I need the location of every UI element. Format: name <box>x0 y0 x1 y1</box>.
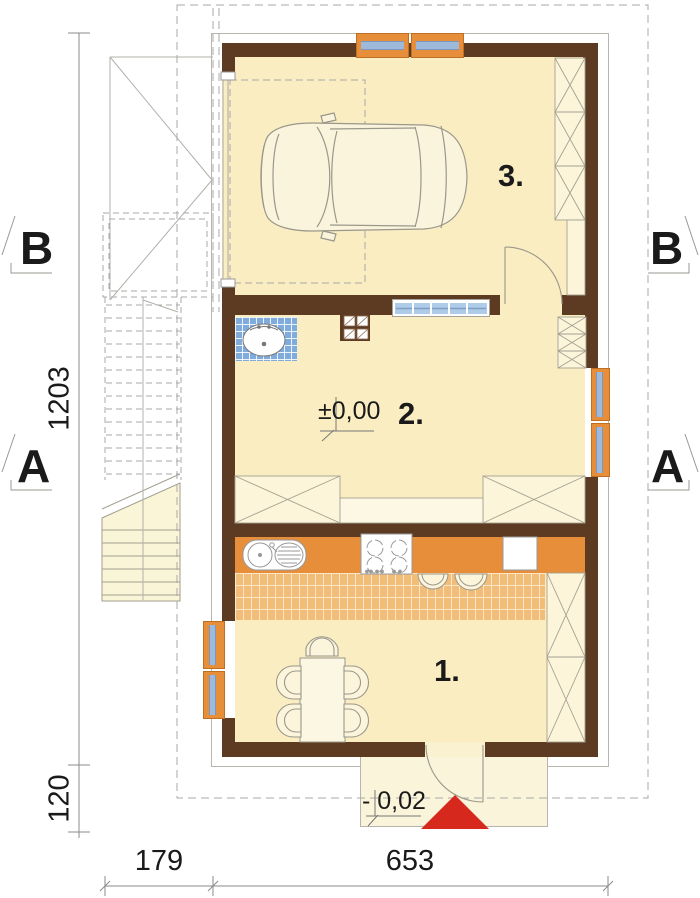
wall-top <box>222 43 598 57</box>
dimension-label-120: 120 <box>46 763 75 835</box>
garage-door-opening <box>222 80 235 279</box>
room-label-garage: 3. <box>498 160 524 191</box>
section-label-a-right: A <box>651 443 684 489</box>
section-label-b-left: B <box>20 225 53 271</box>
interior-door-opening <box>500 295 562 315</box>
level-label-entrance: - 0,02 <box>362 789 426 814</box>
dimension-label-179: 179 <box>119 847 199 876</box>
dimension-label-653: 653 <box>370 847 450 876</box>
level-label-ground: ±0,00 <box>318 399 380 424</box>
room-3-garage-floor <box>235 57 585 295</box>
wall-bottom <box>222 742 598 757</box>
kitchen-floor-tiles <box>235 573 545 620</box>
window-left-2-glass <box>209 675 216 715</box>
window-left-1-glass <box>209 625 216 665</box>
entrance-opening <box>425 742 485 757</box>
wall-room-divider <box>222 523 598 537</box>
flue-block <box>340 295 370 341</box>
dimension-label-1203: 1203 <box>46 363 75 435</box>
floor-plan: B B A A 3. 2. 1. ±0,00 - 0,02 1203 120 1… <box>0 0 700 898</box>
window-top-1-glass <box>361 41 404 50</box>
kitchen-counter <box>235 537 585 573</box>
driveway-arrow-icon <box>110 57 213 300</box>
window-right-1-glass <box>596 372 603 417</box>
window-top-2-glass <box>416 41 459 50</box>
section-label-a-left: A <box>17 443 50 489</box>
stairs-icon <box>102 297 180 601</box>
dimension-line-bottom <box>100 876 613 896</box>
terrace-outline <box>103 213 213 480</box>
interior-window-glass <box>395 303 487 314</box>
room-label-kitchen: 1. <box>434 655 460 686</box>
section-label-b-right: B <box>650 225 683 271</box>
dimension-line-left <box>68 33 90 838</box>
window-right-2-glass <box>596 427 603 473</box>
room-label-hall: 2. <box>398 398 424 429</box>
bathroom-tiles <box>235 317 297 361</box>
